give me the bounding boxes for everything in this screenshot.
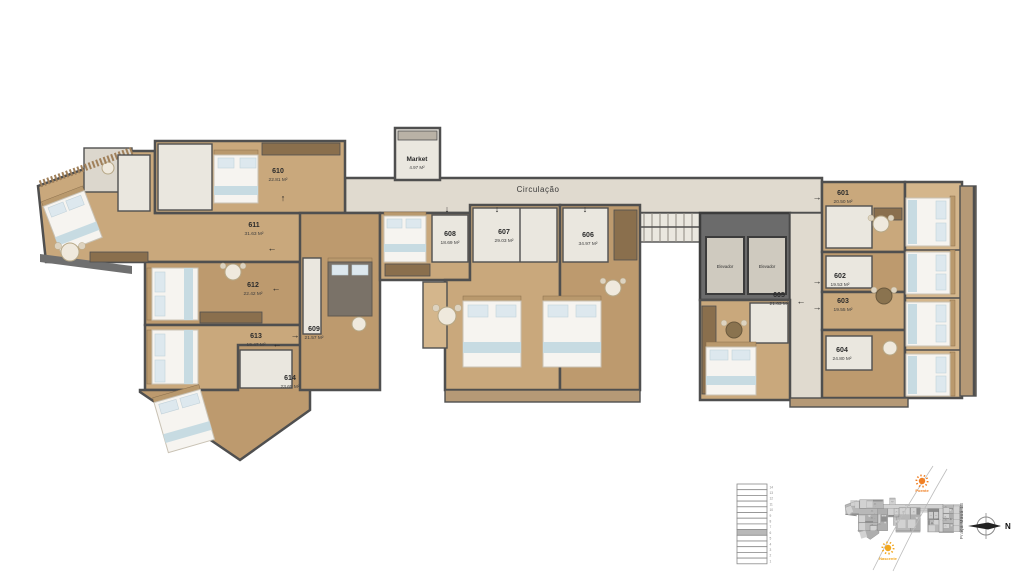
- floor-row-10: [737, 507, 767, 513]
- north-label: N: [1005, 522, 1011, 531]
- floor-row-7: [737, 524, 767, 530]
- bed-603: [906, 300, 955, 346]
- floor-row-label-11: 11: [770, 502, 774, 506]
- floor-row-13: [737, 490, 767, 496]
- floor-plan-page: Market 4.97 M² Elevador Elevador: [0, 0, 1024, 576]
- floor-row-label-4: 4: [770, 542, 772, 546]
- floor-row-label-13: 13: [770, 491, 774, 495]
- unit-609-area: 21.57 M²: [305, 335, 324, 341]
- bed-613: [147, 330, 198, 384]
- floor-row-label-10: 10: [770, 508, 774, 512]
- unit-605-number: 605: [773, 292, 785, 299]
- bed-608: [384, 212, 426, 262]
- floor-row-6: [737, 530, 767, 536]
- unit-604-area: 24.80 M²: [833, 356, 852, 362]
- floor-plan-canvas: Market 4.97 M² Elevador Elevador: [0, 0, 1024, 576]
- floor-stack: 1413121110987654321: [737, 484, 773, 564]
- unit-608-number: 608: [444, 231, 456, 238]
- sun-west-icon: Poente: [915, 475, 929, 493]
- main-floor-plan: Market 4.97 M² Elevador Elevador: [38, 128, 976, 460]
- bed-607: [463, 296, 521, 367]
- arrow-603-icon: →: [813, 302, 822, 312]
- elevator-1-label: Elevador: [717, 264, 734, 269]
- market-label: Market: [407, 156, 429, 163]
- floor-row-label-1: 1: [770, 559, 772, 563]
- arrow-613-icon: ←: [273, 339, 282, 349]
- floor-row-9: [737, 513, 767, 519]
- bed-609: [328, 258, 372, 316]
- floor-row-2: [737, 552, 767, 558]
- bed-605: [706, 342, 756, 395]
- floor-row-8: [737, 518, 767, 524]
- unit-610-area: 22.81 M²: [269, 177, 288, 183]
- street-label: Praça Mauá 13: [959, 503, 964, 539]
- unit-607-number: 607: [498, 229, 510, 236]
- floor-row-1: [737, 558, 767, 564]
- unit-604-number: 604: [836, 347, 848, 354]
- unit-609-number: 609: [308, 326, 320, 333]
- arrow-612-icon: ←: [272, 283, 281, 293]
- floor-row-label-9: 9: [770, 514, 772, 518]
- unit-601-area: 20.50 M²: [834, 199, 853, 205]
- bed-602: [906, 250, 955, 294]
- unit-608-area: 18.69 M²: [441, 240, 460, 246]
- unit-612-area: 22.42 M²: [244, 291, 263, 297]
- floor-row-label-3: 3: [770, 548, 772, 552]
- north-needle: [968, 523, 1001, 530]
- bed-612: [147, 268, 198, 320]
- sun-east-label: Nascente: [879, 556, 898, 561]
- market-room: Market 4.97 M²: [395, 128, 440, 180]
- arrow-602-icon: →: [813, 276, 822, 286]
- unit-606-area: 34.97 M²: [579, 241, 598, 247]
- unit-602-area: 19.53 M²: [831, 282, 850, 288]
- floor-row-label-6: 6: [770, 531, 772, 535]
- floor-row-label-12: 12: [770, 497, 774, 501]
- bed-610: [214, 150, 258, 203]
- floor-row-label-14: 14: [770, 485, 774, 489]
- arrow-601-icon: →: [813, 192, 822, 202]
- arrow-609-icon: →: [291, 330, 300, 340]
- bed-606: [543, 296, 601, 367]
- unit-612-number: 612: [247, 282, 259, 289]
- floor-row-11: [737, 501, 767, 507]
- unit-607-area: 29.03 M²: [495, 238, 514, 244]
- right-balcony: [960, 186, 976, 396]
- floor-row-12: [737, 495, 767, 501]
- elevator-block: Elevador Elevador: [700, 213, 790, 300]
- unit-614-number: 614: [284, 375, 296, 382]
- arrow-605-icon: ←: [797, 296, 806, 306]
- sun-west-label: Poente: [915, 488, 929, 493]
- floor-row-3: [737, 547, 767, 553]
- elevator-2-label: Elevador: [759, 264, 776, 269]
- bed-601: [906, 196, 955, 246]
- key-plan: [845, 498, 962, 540]
- legend: 1413121110987654321 Poente Nascente Praç…: [737, 466, 1011, 571]
- unit-613-number: 613: [250, 333, 262, 340]
- middle-balcony: [445, 390, 640, 402]
- unit-602-number: 602: [834, 273, 846, 280]
- unit-601-number: 601: [837, 190, 849, 197]
- arrow-606-icon: ↓: [583, 204, 588, 214]
- unit-611-number: 611: [248, 222, 259, 229]
- unit-603-area: 19.55 M²: [834, 307, 853, 313]
- unit-603-number: 603: [837, 298, 849, 305]
- arrow-608-icon: ↓: [445, 204, 450, 214]
- floor-row-label-5: 5: [770, 537, 772, 541]
- bed-604: [906, 352, 955, 396]
- floor-row-label-8: 8: [770, 520, 772, 524]
- corridor-label: Circulação: [517, 185, 560, 194]
- unit-613-area: 19.47 M²: [247, 342, 266, 348]
- unit-605-area: 21.63 M²: [770, 301, 789, 307]
- floor-row-label-2: 2: [770, 554, 772, 558]
- floor-row-14: [737, 484, 767, 490]
- unit-610-number: 610: [272, 168, 284, 175]
- market-area: 4.97 M²: [409, 165, 425, 170]
- compass: N: [968, 513, 1011, 539]
- arrow-611-icon: ←: [268, 243, 277, 253]
- floor-row-4: [737, 541, 767, 547]
- floor-row-5: [737, 535, 767, 541]
- unit-614-area: 23.65 M²: [281, 384, 300, 390]
- floor-row-label-7: 7: [770, 525, 772, 529]
- arrow-607-icon: ↓: [495, 204, 500, 214]
- unit-606-number: 606: [582, 232, 594, 239]
- unit-611-area: 31.63 M²: [245, 231, 264, 237]
- bottom-right-balcony: [790, 398, 908, 407]
- arrow-610-icon: ↑: [281, 193, 286, 203]
